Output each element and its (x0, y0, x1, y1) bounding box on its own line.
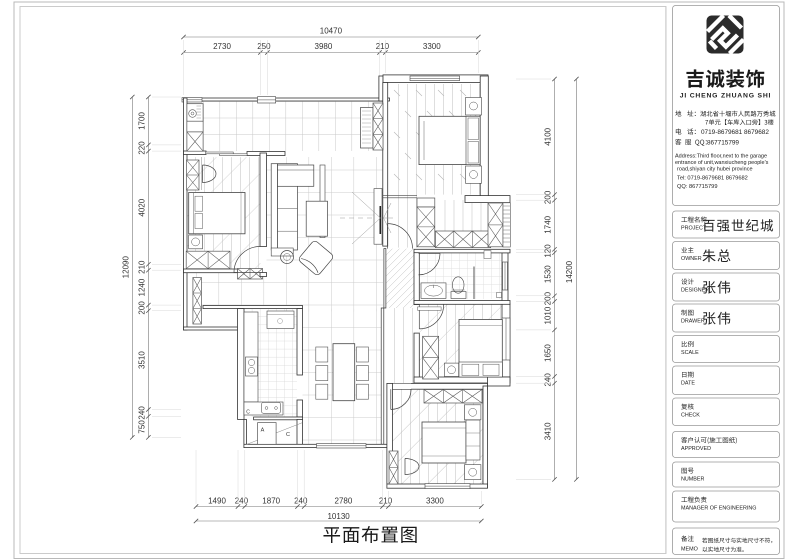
svg-text:1490: 1490 (208, 497, 226, 506)
svg-text:C: C (286, 432, 290, 438)
svg-text:210: 210 (376, 42, 390, 51)
svg-text:200: 200 (543, 190, 552, 204)
svg-text:4020: 4020 (137, 198, 146, 216)
svg-text:SCALE: SCALE (681, 350, 699, 356)
svg-text:14200: 14200 (565, 260, 574, 283)
svg-text:OWNER: OWNER (681, 256, 702, 262)
svg-text:2780: 2780 (335, 497, 353, 506)
svg-text:NUMBER: NUMBER (681, 477, 704, 483)
svg-text:240: 240 (294, 497, 308, 506)
svg-text:C: C (246, 410, 250, 416)
svg-text:CHECK: CHECK (681, 413, 700, 419)
svg-text:3300: 3300 (423, 42, 441, 51)
svg-text:DATE: DATE (681, 381, 695, 387)
svg-text:10470: 10470 (320, 27, 343, 36)
svg-text:3300: 3300 (426, 497, 444, 506)
svg-text:1650: 1650 (543, 344, 552, 362)
svg-text:10130: 10130 (327, 512, 350, 521)
svg-text:200: 200 (543, 291, 552, 305)
svg-text:1530: 1530 (543, 265, 552, 283)
svg-text:QQ: 867715799: QQ: 867715799 (677, 184, 717, 190)
svg-text:4100: 4100 (543, 127, 552, 145)
svg-text:1240: 1240 (137, 278, 146, 296)
svg-text:220: 220 (137, 141, 146, 155)
svg-text:2730: 2730 (213, 42, 231, 51)
svg-text:APPROVED: APPROVED (681, 446, 711, 452)
svg-text:DRAWER: DRAWER (681, 319, 705, 325)
svg-text:1700: 1700 (137, 112, 146, 130)
svg-text:1740: 1740 (543, 215, 552, 233)
svg-text:240: 240 (137, 406, 146, 420)
svg-text:120: 120 (543, 244, 552, 258)
svg-text:road,shiyan city hubei provinc: road,shiyan city hubei province (677, 167, 753, 173)
svg-text:3980: 3980 (315, 42, 333, 51)
svg-text:750: 750 (137, 420, 146, 434)
svg-text:Address:Third floor,next to th: Address:Third floor,next to the garage (675, 154, 767, 160)
svg-text:JI CHENG ZHUANG SHI: JI CHENG ZHUANG SHI (680, 93, 771, 100)
svg-text:240: 240 (543, 373, 552, 387)
svg-text:Tel: 0719-8679681 8679682: Tel: 0719-8679681 8679682 (677, 176, 748, 182)
svg-text:250: 250 (257, 42, 271, 51)
svg-text:210: 210 (137, 260, 146, 274)
svg-text:12090: 12090 (121, 256, 130, 279)
svg-text:entrance of unit,wanxiucheng p: entrance of unit,wanxiucheng people's (675, 160, 769, 166)
svg-text:1870: 1870 (262, 497, 280, 506)
svg-text:210: 210 (379, 497, 393, 506)
svg-text:3510: 3510 (137, 351, 146, 369)
svg-text:200: 200 (137, 301, 146, 315)
svg-text:MEMO: MEMO (681, 547, 698, 553)
svg-text:240: 240 (235, 497, 249, 506)
svg-text:A: A (261, 428, 265, 434)
svg-text:3410: 3410 (543, 422, 552, 440)
svg-text:PROJECT: PROJECT (681, 226, 707, 232)
svg-text:1010: 1010 (543, 306, 552, 324)
svg-text:MANAGER OF ENGINEERING: MANAGER OF ENGINEERING (681, 506, 756, 512)
svg-text:867715799: 867715799 (707, 140, 739, 147)
svg-text:0719-8679681 8679682: 0719-8679681 8679682 (701, 129, 769, 136)
